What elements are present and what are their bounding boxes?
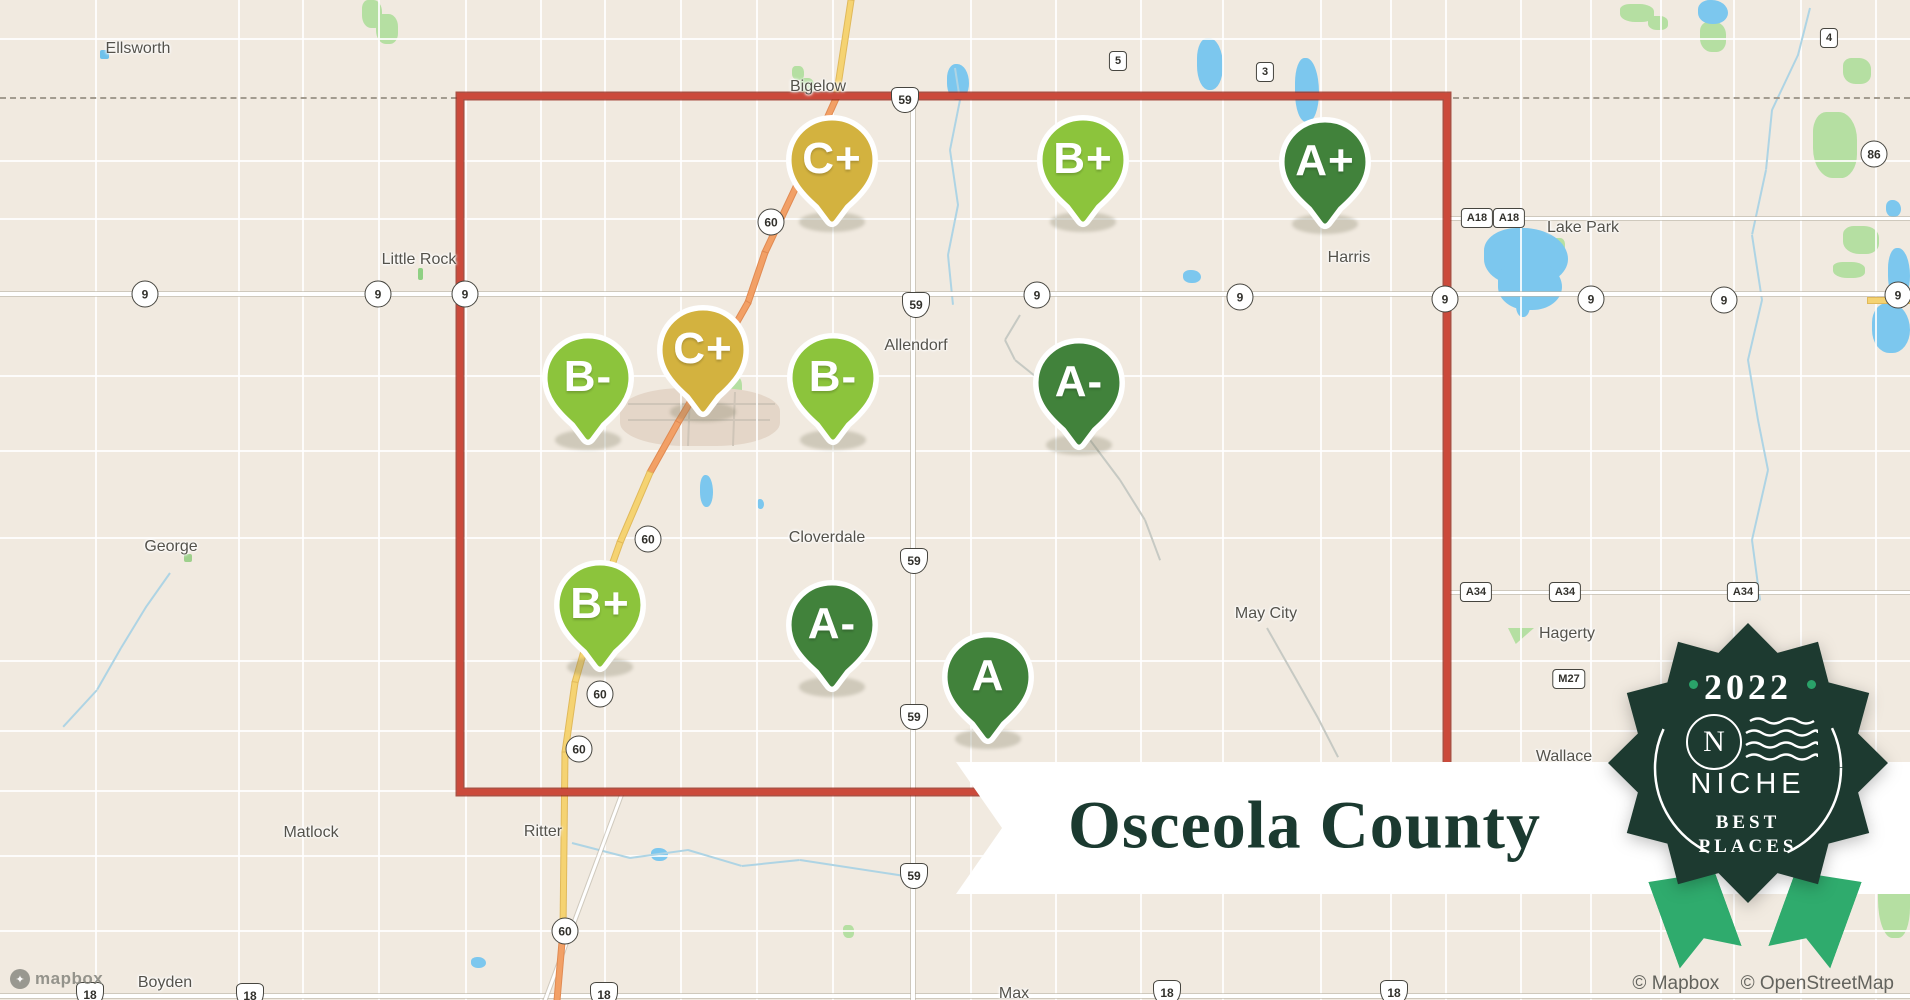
route-shield-18: 18 xyxy=(1380,980,1408,1000)
route-shield-60: 60 xyxy=(566,736,593,763)
route-shield-9: 9 xyxy=(132,281,159,308)
route-shield-9: 9 xyxy=(1578,286,1605,313)
stream xyxy=(1751,470,1769,540)
park-area xyxy=(1843,58,1871,84)
route-shield-A34: A34 xyxy=(1460,582,1492,602)
stream xyxy=(1751,170,1767,235)
town-label-allendorf: Allendorf xyxy=(884,337,947,355)
niche-waves-icon xyxy=(1744,716,1818,766)
town-label-max: Max xyxy=(999,985,1029,1000)
grade-marker-C+[interactable]: C+ xyxy=(786,115,878,229)
route-shield-59: 59 xyxy=(900,863,928,889)
town-label-harris: Harris xyxy=(1328,249,1371,267)
road xyxy=(238,0,240,1000)
town-label-may-city: May City xyxy=(1235,605,1297,623)
attribution-osm-link[interactable]: © OpenStreetMap xyxy=(1741,973,1894,994)
grade-label: B- xyxy=(542,335,634,419)
stream xyxy=(800,859,905,877)
park-area xyxy=(1648,16,1668,30)
route-shield-5: 5 xyxy=(1109,51,1127,71)
route-shield-9: 9 xyxy=(1885,282,1910,309)
town-label-ritter: Ritter xyxy=(524,823,562,841)
attribution-mapbox-link[interactable]: © Mapbox xyxy=(1632,973,1719,994)
route-shield-9: 9 xyxy=(452,281,479,308)
route-shield-60: 60 xyxy=(758,209,785,236)
stream xyxy=(1757,420,1769,470)
route-shield-A34: A34 xyxy=(1549,582,1581,602)
mapbox-logo-word: mapbox xyxy=(35,969,103,989)
stream xyxy=(1771,55,1799,111)
road xyxy=(95,0,97,1000)
grade-marker-A[interactable]: A xyxy=(942,632,1034,746)
highway-road xyxy=(1447,591,1910,594)
grade-marker-A-[interactable]: A- xyxy=(786,580,878,694)
park-area xyxy=(1813,112,1857,178)
grade-label: A xyxy=(942,634,1034,718)
town-label-ellsworth: Ellsworth xyxy=(106,40,171,58)
route-shield-M27: M27 xyxy=(1552,669,1585,689)
route-shield-60: 60 xyxy=(552,918,579,945)
lake xyxy=(1872,303,1910,353)
town-label-cloverdale: Cloverdale xyxy=(789,529,865,547)
stream xyxy=(1747,300,1763,360)
grade-label: A- xyxy=(786,582,878,666)
park-area xyxy=(1700,22,1726,52)
grade-label: B- xyxy=(787,335,879,419)
lake xyxy=(1197,38,1223,90)
grade-marker-B+[interactable]: B+ xyxy=(554,560,646,674)
town-label-bigelow: Bigelow xyxy=(790,78,846,96)
route-shield-9: 9 xyxy=(1024,282,1051,309)
stream xyxy=(688,849,743,867)
road xyxy=(378,0,380,1000)
stream xyxy=(1747,360,1759,420)
town-label-george: George xyxy=(144,538,197,556)
lake xyxy=(1498,260,1562,310)
route-shield-3: 3 xyxy=(1256,62,1274,82)
badge-tagline-best: BEST xyxy=(1648,812,1848,834)
map-attribution: © Mapbox © OpenStreetMap xyxy=(1616,973,1894,995)
county-banner-title: Osceola County xyxy=(1068,785,1541,864)
town-label-matlock: Matlock xyxy=(283,824,338,842)
stream xyxy=(120,606,147,648)
grade-marker-C+[interactable]: C+ xyxy=(657,305,749,419)
grade-label: A+ xyxy=(1279,119,1371,203)
lake xyxy=(471,957,486,968)
stream xyxy=(742,859,800,867)
stream xyxy=(1751,235,1763,300)
route-shield-4: 4 xyxy=(1820,28,1838,48)
road xyxy=(0,38,1910,40)
grade-marker-B+[interactable]: B+ xyxy=(1037,115,1129,229)
town-label-hagerty: Hagerty xyxy=(1539,625,1595,643)
grade-label: B+ xyxy=(554,562,646,646)
road xyxy=(302,0,304,1000)
route-shield-9: 9 xyxy=(1711,287,1738,314)
mapbox-logo-icon: ✦ xyxy=(10,969,30,989)
park-area xyxy=(1843,226,1879,254)
lake xyxy=(1886,200,1901,217)
grade-marker-A-[interactable]: A- xyxy=(1033,338,1125,452)
town-label-little-rock: Little Rock xyxy=(382,251,457,269)
grade-marker-B-[interactable]: B- xyxy=(542,333,634,447)
stream xyxy=(145,572,171,607)
badge-tagline-places: PLACES xyxy=(1648,836,1848,858)
park-area xyxy=(1833,262,1865,278)
route-shield-18: 18 xyxy=(236,983,264,1000)
route-shield-60: 60 xyxy=(635,526,662,553)
lake xyxy=(1698,0,1728,24)
route-shield-A18: A18 xyxy=(1493,208,1525,228)
grade-marker-A+[interactable]: A+ xyxy=(1279,117,1371,231)
grade-label: C+ xyxy=(786,117,878,201)
route-shield-60: 60 xyxy=(587,681,614,708)
route-shield-9: 9 xyxy=(1432,286,1459,313)
stream xyxy=(62,689,97,727)
grade-label: A- xyxy=(1033,340,1125,424)
route-shield-A34: A34 xyxy=(1727,582,1759,602)
badge-brand: NICHE xyxy=(1648,768,1848,801)
grade-marker-B-[interactable]: B- xyxy=(787,333,879,447)
route-shield-9: 9 xyxy=(365,281,392,308)
mapbox-logo[interactable]: ✦ mapbox xyxy=(10,969,103,989)
town-label-lake-park: Lake Park xyxy=(1547,219,1619,237)
route-shield-18: 18 xyxy=(590,982,618,1000)
map-canvas[interactable]: Osceola County 2022 N NICHE BEST PLACES … xyxy=(0,0,1910,1000)
niche-n-logo-icon: N xyxy=(1686,714,1742,770)
route-shield-18: 18 xyxy=(1153,980,1181,1000)
route-shield-9: 9 xyxy=(1227,284,1254,311)
grade-label: C+ xyxy=(657,307,749,391)
lake xyxy=(1516,293,1530,317)
grade-label: B+ xyxy=(1037,117,1129,201)
town-icon xyxy=(418,268,423,280)
stream xyxy=(96,648,122,691)
town-label-boyden: Boyden xyxy=(138,974,192,992)
route-shield-A18: A18 xyxy=(1461,208,1493,228)
road xyxy=(0,930,1910,932)
route-shield-86: 86 xyxy=(1861,141,1888,168)
